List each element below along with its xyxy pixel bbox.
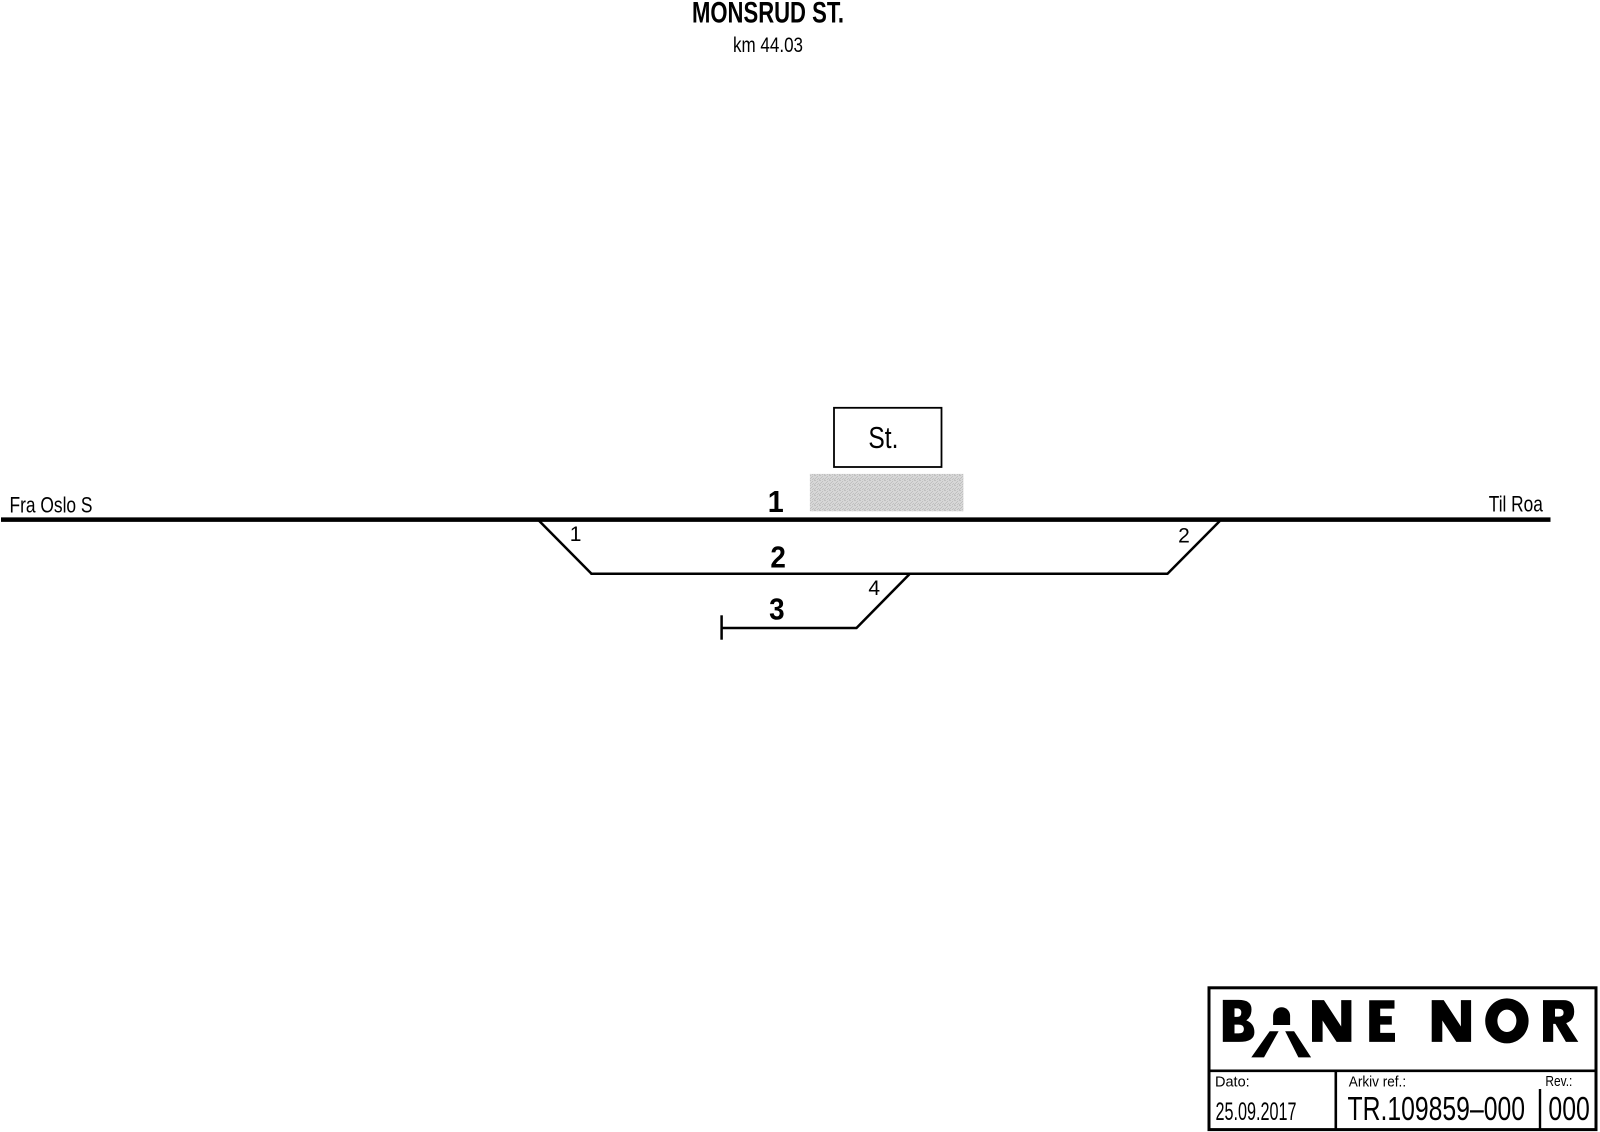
svg-text:1: 1	[768, 484, 784, 519]
svg-text:2: 2	[1178, 525, 1190, 548]
svg-text:TR.109859–000: TR.109859–000	[1348, 1091, 1526, 1128]
svg-text:Dato:: Dato:	[1215, 1075, 1250, 1091]
svg-text:Rev.:: Rev.:	[1545, 1074, 1572, 1090]
svg-text:2: 2	[770, 540, 786, 575]
svg-text:MONSRUD ST.: MONSRUD ST.	[692, 0, 844, 29]
svg-text:3: 3	[769, 592, 785, 627]
svg-text:000: 000	[1548, 1091, 1589, 1128]
svg-text:1: 1	[570, 523, 582, 546]
svg-text:Arkiv ref.:: Arkiv ref.:	[1349, 1075, 1406, 1091]
svg-text:25.09.2017: 25.09.2017	[1216, 1098, 1297, 1126]
svg-text:Til Roa: Til Roa	[1489, 492, 1544, 517]
svg-text:St.: St.	[868, 420, 898, 455]
svg-text:km 44.03: km 44.03	[733, 34, 803, 57]
svg-text:Fra Oslo S: Fra Oslo S	[10, 493, 93, 518]
svg-text:4: 4	[868, 577, 880, 600]
